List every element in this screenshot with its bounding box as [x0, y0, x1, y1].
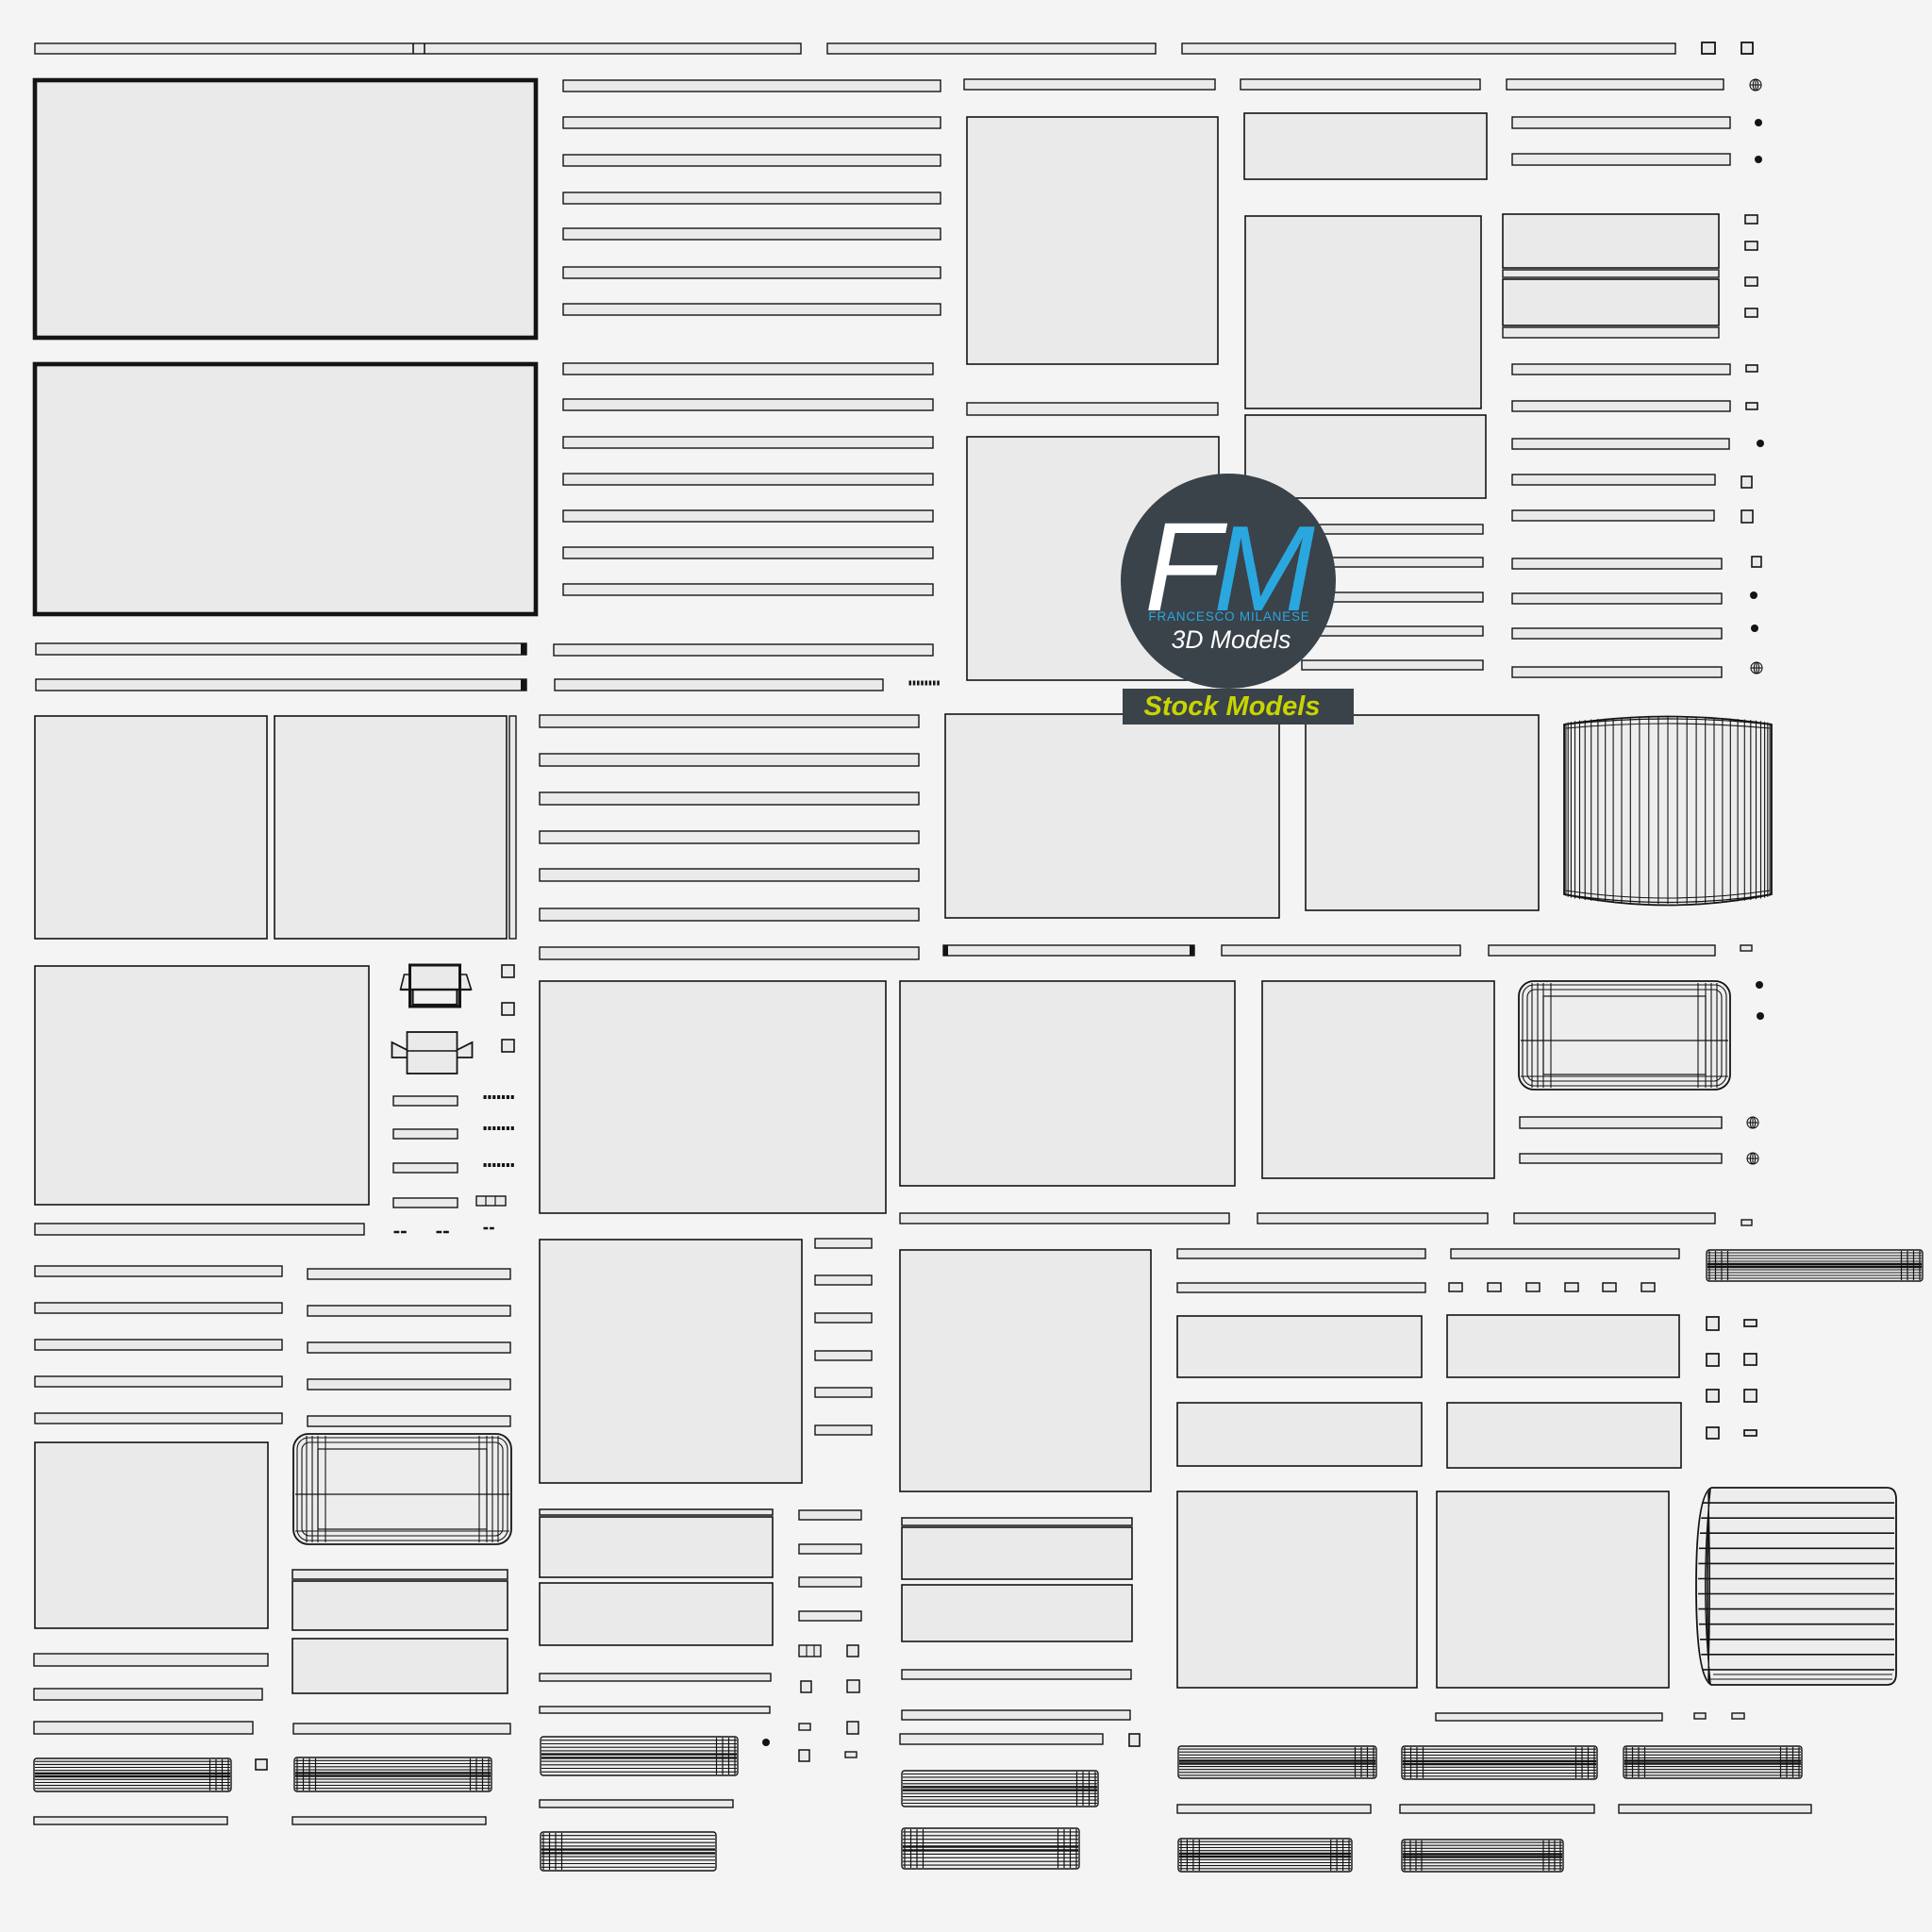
svg-text:FRANCESCO MILANESE: FRANCESCO MILANESE — [1148, 609, 1309, 624]
svg-text:3D Models: 3D Models — [1172, 625, 1291, 654]
svg-text:Stock Models: Stock Models — [1144, 691, 1321, 722]
